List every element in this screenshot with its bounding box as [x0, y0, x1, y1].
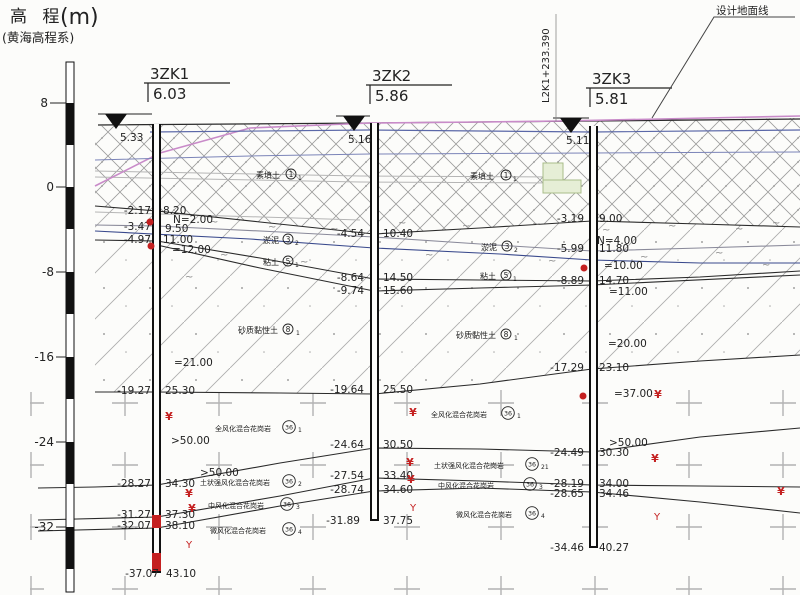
axis-tick-label: 8 [40, 96, 48, 110]
axis-tick-label: -24 [34, 435, 54, 449]
svg-text:36: 36 [283, 502, 291, 509]
water-level-value: 5.33 [120, 132, 143, 144]
sample-dot [147, 219, 154, 226]
axis-tick-label: -16 [34, 350, 54, 364]
seam-mark: ~ [185, 272, 193, 283]
depth-value: 43.10 [166, 568, 196, 580]
depth-value: 30.50 [383, 439, 413, 451]
svg-text:砂质黏性土: 砂质黏性土 [456, 330, 496, 340]
svg-text:36: 36 [285, 425, 293, 432]
elev-value: -24.64 [330, 439, 364, 451]
depth-value: 9.00 [599, 213, 622, 225]
svg-text:粘土: 粘土 [480, 271, 496, 281]
spt-value: N=4.00 [597, 235, 637, 247]
svg-text:36: 36 [504, 411, 512, 418]
seam-mark: ~ [425, 250, 433, 261]
axis-unit: (m) [60, 5, 99, 30]
core-sample-mark: Y [185, 540, 193, 551]
design-ground-callout: 设计地面线 [652, 4, 795, 118]
elev-value: -24.49 [550, 447, 584, 459]
svg-text:4: 4 [298, 529, 302, 536]
svg-text:中风化混合花岗岩: 中风化混合花岗岩 [438, 481, 494, 490]
svg-text:36: 36 [528, 511, 536, 518]
elev-value: -19.27 [117, 385, 151, 397]
seam-mark: ~ [220, 250, 228, 261]
core-sample-mark: Y [653, 512, 661, 523]
depth-value: 37.75 [383, 515, 413, 527]
spt-value: =21.00 [174, 357, 213, 369]
svg-text:8: 8 [504, 330, 509, 339]
spt-value: >50.00 [200, 467, 239, 479]
spt-value: =37.00 [614, 388, 653, 400]
elev-value: -2.17 [124, 205, 151, 217]
sample-dot [581, 265, 588, 272]
spt-sample-mark: ¥ [185, 487, 193, 500]
svg-text:3: 3 [539, 484, 543, 491]
borehole-3zk1-shaft [152, 124, 161, 572]
spt-sample-mark: ¥ [188, 502, 196, 515]
sample-dot [580, 393, 587, 400]
seam-mark: ~ [772, 218, 780, 229]
seam-mark: ~ [668, 221, 676, 232]
elev-value: -4.97 [124, 234, 151, 246]
sample-dot [148, 243, 155, 250]
depth-value: 10.40 [383, 228, 413, 240]
svg-text:2: 2 [295, 240, 299, 247]
seam-mark: ~ [715, 248, 723, 259]
elev-value: -37.07 [125, 568, 159, 580]
depth-value: 40.27 [599, 542, 629, 554]
depth-value: 14.50 [383, 272, 413, 284]
spt-value: =10.00 [604, 260, 643, 272]
axis-tick-label: 0 [46, 180, 54, 194]
svg-text:36: 36 [285, 479, 293, 486]
svg-text:3: 3 [296, 504, 300, 511]
elev-value: -31.89 [326, 515, 360, 527]
svg-text:素填土: 素填土 [256, 170, 280, 180]
depth-value: 25.50 [383, 384, 413, 396]
svg-text:1: 1 [513, 276, 517, 283]
borehole-top-elevation: 6.03 [153, 85, 186, 103]
water-level-value: 5.16 [348, 134, 372, 146]
depth-value: 25.30 [165, 385, 195, 397]
svg-text:全风化混合花岗岩: 全风化混合花岗岩 [431, 410, 487, 419]
spt-value: =20.00 [608, 338, 647, 350]
svg-text:1: 1 [295, 262, 299, 269]
svg-text:淤泥: 淤泥 [481, 242, 497, 252]
geological-cross-section: ~ ~ ~ ~ ~ ~ ~ ~ ~ ~ ~ ~ ~ ~ ~ ~ ~ ~ 素填土 … [0, 0, 800, 595]
svg-text:1: 1 [289, 170, 294, 179]
svg-text:36: 36 [285, 527, 293, 534]
axis-tick-label: -32 [34, 520, 54, 534]
elev-value: -27.54 [330, 470, 364, 482]
depth-value: 34.46 [599, 488, 629, 500]
scale-bar [66, 62, 74, 592]
elev-value: -8.89 [557, 275, 584, 287]
spt-value: >50.00 [609, 437, 648, 449]
water-level-value: 5.11 [566, 135, 589, 147]
spt-sample-mark: ¥ [777, 485, 785, 498]
borehole-name: 3ZK1 [150, 65, 189, 83]
svg-text:2: 2 [514, 247, 518, 254]
elev-value: -17.29 [550, 362, 584, 374]
spt-sample-mark: ¥ [654, 388, 662, 401]
spt-value: N=2.00 [173, 214, 213, 226]
svg-text:砂质黏性土: 砂质黏性土 [238, 325, 278, 335]
elev-value: -5.99 [557, 243, 584, 255]
axis-title: 高 程 [10, 7, 64, 27]
elev-value: -34.46 [550, 542, 584, 554]
seam-mark: ~ [462, 221, 470, 232]
svg-text:3: 3 [286, 235, 291, 244]
depth-value: 15.60 [383, 285, 413, 297]
svg-text:1: 1 [296, 330, 300, 337]
svg-text:2: 2 [298, 481, 302, 488]
spt-value: =11.00 [609, 286, 648, 298]
axis-tick-label: -8 [42, 265, 54, 279]
svg-text:1: 1 [504, 171, 509, 180]
svg-text:36: 36 [528, 462, 536, 469]
seam-mark: ~ [532, 219, 540, 230]
svg-text:淤泥: 淤泥 [263, 235, 279, 245]
borehole-top-elevation: 5.81 [595, 90, 628, 108]
svg-text:36: 36 [526, 482, 534, 489]
elev-value: -19.64 [330, 384, 364, 396]
svg-text:土状强风化混合花岗岩: 土状强风化混合花岗岩 [200, 478, 270, 487]
svg-text:土状强风化混合花岗岩: 土状强风化混合花岗岩 [434, 461, 504, 470]
svg-text:1: 1 [298, 427, 302, 434]
station-marker: L2K1+233.390 [541, 14, 556, 121]
svg-text:5: 5 [286, 257, 291, 266]
borehole-3zk2-shaft [370, 123, 379, 520]
borehole-name: 3ZK2 [372, 67, 411, 85]
core-sample-mark: Y [409, 503, 417, 514]
spt-sample-mark: ¥ [406, 456, 414, 469]
svg-text:微风化混合花岗岩: 微风化混合花岗岩 [210, 526, 266, 535]
elev-value: -8.64 [337, 272, 364, 284]
svg-text:4: 4 [541, 513, 545, 520]
seam-mark: ~ [268, 222, 276, 233]
spt-sample-mark: ¥ [165, 410, 173, 423]
svg-text:微风化混合花岗岩: 微风化混合花岗岩 [456, 510, 512, 519]
svg-text:中风化混合花岗岩: 中风化混合花岗岩 [208, 501, 264, 510]
spt-sample-mark: ¥ [409, 406, 417, 419]
section-drawing: ~ ~ ~ ~ ~ ~ ~ ~ ~ ~ ~ ~ ~ ~ ~ ~ ~ ~ 素填土 … [0, 0, 800, 595]
svg-text:1: 1 [513, 176, 517, 183]
seam-mark: ~ [300, 257, 308, 268]
borehole-3zk3-shaft [589, 126, 598, 547]
seam-mark: ~ [735, 224, 743, 235]
station-label: L2K1+233.390 [541, 28, 552, 103]
spt-sample-mark: ¥ [407, 473, 415, 486]
seam-mark: ~ [548, 256, 556, 267]
elev-value: -32.07 [117, 520, 151, 532]
svg-text:21: 21 [541, 464, 549, 471]
seam-mark: ~ [762, 260, 770, 271]
axis-subtitle: (黄海高程系) [2, 30, 74, 45]
spt-sample-mark: ¥ [651, 452, 659, 465]
elev-value: -28.27 [117, 478, 151, 490]
depth-value: 38.10 [165, 520, 195, 532]
svg-text:1: 1 [517, 413, 521, 420]
svg-text:素填土: 素填土 [470, 171, 494, 181]
borehole-name: 3ZK3 [592, 70, 631, 88]
elev-value: -3.19 [557, 213, 584, 225]
svg-text:1: 1 [298, 175, 302, 182]
svg-text:全风化混合花岗岩: 全风化混合花岗岩 [215, 424, 271, 433]
spt-value: =12.00 [172, 244, 211, 256]
svg-text:5: 5 [504, 271, 509, 280]
elev-value: -4.54 [337, 228, 364, 240]
svg-text:3: 3 [505, 242, 510, 251]
elev-value: -28.65 [550, 488, 584, 500]
spt-value: >50.00 [171, 435, 210, 447]
elev-value: -28.74 [330, 484, 364, 496]
svg-text:1: 1 [514, 335, 518, 342]
core-sample-red [152, 515, 161, 528]
design-ground-label: 设计地面线 [716, 4, 769, 17]
borehole-top-elevation: 5.86 [375, 87, 408, 105]
depth-value: 23.10 [599, 362, 629, 374]
elev-value: -9.74 [337, 285, 364, 297]
svg-text:8: 8 [286, 325, 291, 334]
svg-text:粘土: 粘土 [263, 257, 279, 267]
